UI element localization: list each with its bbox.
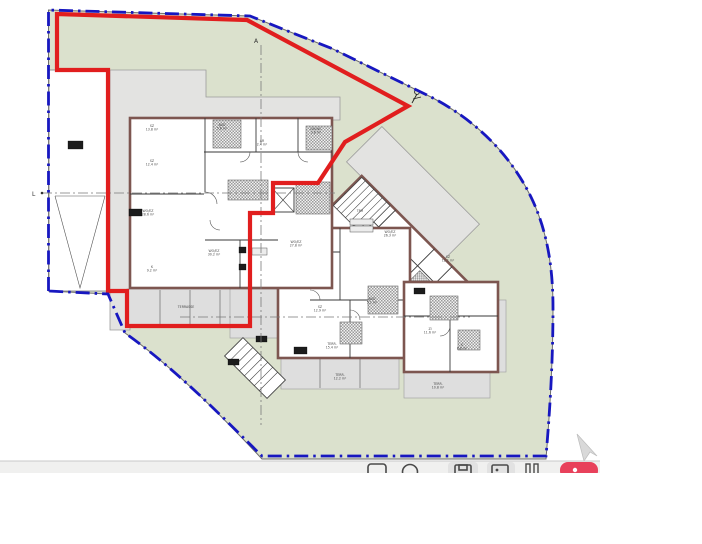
- room-label: WO/EZ26.3 m²: [384, 230, 397, 238]
- floor-plan-canvas: SZ13.8 m²SZ12.4 m²WO/EZ28.6 m²K9.2 m²BAD…: [0, 0, 702, 544]
- plan-tag-box: [68, 141, 83, 149]
- room-label: WO/EZ30.2 m²: [208, 249, 221, 257]
- plan-tag-box: [256, 336, 267, 342]
- room-label: DU/WC3.8 m²: [310, 127, 322, 135]
- terrace-lower-right: [404, 372, 490, 398]
- bathroom-hatch: [228, 180, 268, 200]
- plan-tag-box: [129, 209, 142, 216]
- page-blank-area: [0, 473, 702, 544]
- record-button-glyph: [573, 468, 577, 472]
- plan-tag-box: [350, 226, 373, 232]
- bathroom-hatch: [430, 296, 458, 320]
- apartment-block-left: [130, 118, 332, 288]
- room-label: TRH: [356, 209, 364, 213]
- room-label: TERRASSE: [177, 305, 195, 309]
- parking-ramp-area: [49, 70, 108, 291]
- plan-tag-box: [252, 248, 267, 255]
- plan-tag-box: [228, 359, 239, 365]
- plan-tag-box: [350, 219, 373, 225]
- room-label: WO/EZ27.8 m²: [290, 240, 303, 248]
- plan-tag-box: [414, 288, 425, 294]
- bathroom-hatch: [296, 182, 330, 214]
- bathroom-hatch: [340, 322, 362, 344]
- plan-tag-box: [239, 247, 246, 253]
- apartment-block-right: [404, 282, 498, 372]
- elevator: [272, 188, 294, 212]
- bathroom-hatch: [213, 120, 241, 148]
- drawing-viewport: SZ13.8 m²SZ12.4 m²WO/EZ28.6 m²K9.2 m²BAD…: [0, 0, 702, 544]
- plan-tag-box: [239, 264, 246, 270]
- room-label: WO/EZ28.6 m²: [142, 209, 155, 217]
- plan-tag-box: [294, 347, 307, 354]
